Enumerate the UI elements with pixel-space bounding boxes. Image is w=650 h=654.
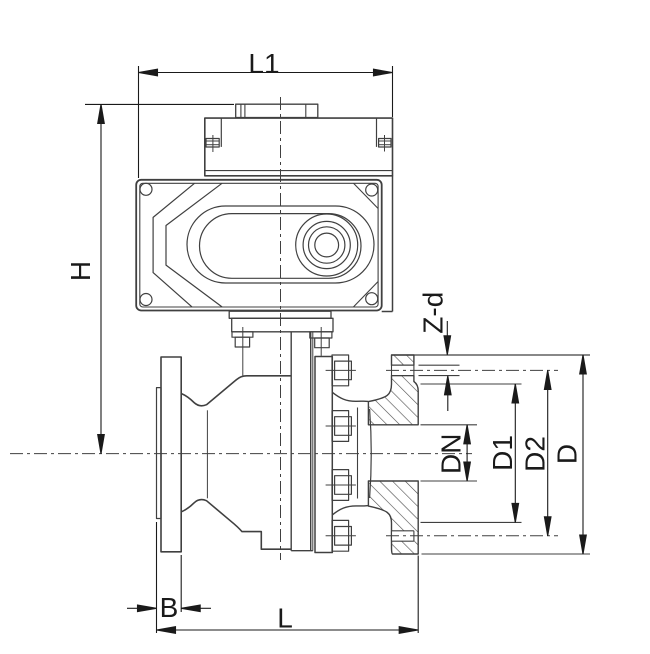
svg-text:L: L (277, 603, 293, 634)
svg-text:L1: L1 (248, 48, 279, 79)
svg-text:Z-d: Z-d (418, 292, 449, 334)
svg-text:DN: DN (436, 434, 467, 474)
svg-text:B: B (160, 592, 179, 623)
svg-text:D1: D1 (487, 435, 518, 471)
svg-text:D2: D2 (519, 436, 550, 472)
svg-text:H: H (65, 261, 96, 281)
svg-text:D: D (552, 444, 583, 464)
